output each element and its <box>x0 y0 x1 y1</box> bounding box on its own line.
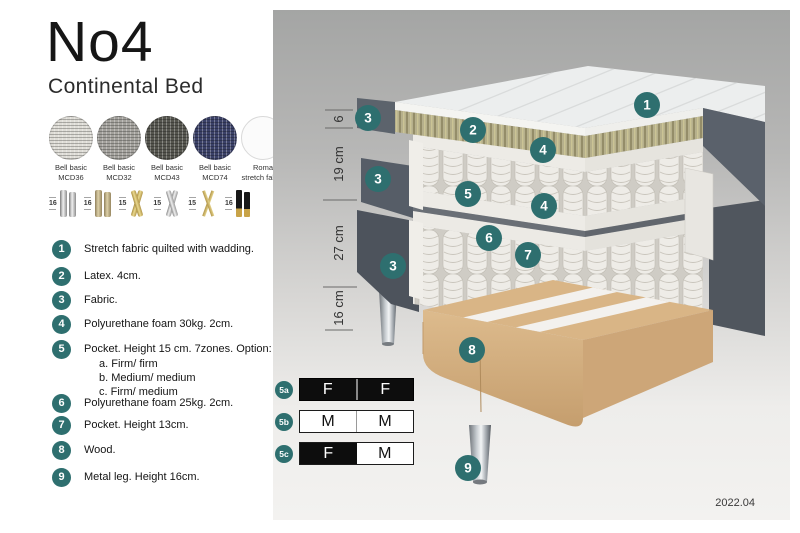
part-option: b. Medium/ medium <box>99 371 272 385</box>
part-item: 7Pocket. Height 13cm. <box>52 416 189 435</box>
firmness-cell: M <box>300 411 356 432</box>
parts-list: 1Stretch fabric quilted with wadding. 2L… <box>52 240 274 520</box>
firmness-id: 5a <box>275 381 293 399</box>
callout-4: 4 <box>530 137 556 163</box>
part-item: 6Polyurethane foam 25kg. 2cm. <box>52 394 233 413</box>
firmness-cell: M <box>357 443 414 464</box>
part-item: 9Metal leg. Height 16cm. <box>52 468 200 487</box>
part-text: Pocket. Height 15 cm. 7zones. Option: a.… <box>84 340 272 400</box>
fabric-swatch-circle <box>49 116 93 160</box>
fabric-swatch-row: Bell basicMCD36 Bell basicMCD32 Bell bas… <box>48 116 286 183</box>
fabric-swatch: Bell basicMCD43 <box>144 116 190 183</box>
callout-2: 2 <box>460 117 486 143</box>
svg-text:4: 4 <box>539 143 547 158</box>
fabric-swatch-circle <box>145 116 189 160</box>
leg-option: 15 <box>188 190 217 217</box>
callout-8: 8 <box>459 337 485 363</box>
part-option: a. Firm/ firm <box>99 357 272 371</box>
dimension-label: 27 cm <box>331 225 346 260</box>
callout-9: 9 <box>455 455 481 481</box>
version-label: 2022.04 <box>715 497 755 509</box>
part-item: 8Wood. <box>52 441 116 460</box>
callout-4: 4 <box>531 193 557 219</box>
part-item: 4Polyurethane foam 30kg. 2cm. <box>52 315 233 334</box>
title-block: No4 Continental Bed <box>46 14 203 99</box>
part-item: 2Latex. 4cm. <box>52 267 141 286</box>
svg-text:3: 3 <box>364 111 372 126</box>
callout-3: 3 <box>355 105 381 131</box>
leg-height-label: 15 <box>153 195 161 212</box>
leg-height-label: 16 <box>49 195 57 212</box>
fabric-swatch: Bell basicMCD74 <box>192 116 238 183</box>
part-text: Polyurethane foam 25kg. 2cm. <box>84 394 233 411</box>
part-number: 3 <box>52 291 71 310</box>
svg-text:2: 2 <box>469 123 477 138</box>
dimension-label: 16 cm <box>331 290 346 325</box>
fabric-swatch-label: Bell basicMCD32 <box>103 163 135 183</box>
part-number: 2 <box>52 267 71 286</box>
fabric-swatch-circle <box>97 116 141 160</box>
svg-text:1: 1 <box>643 98 651 113</box>
part-number: 6 <box>52 394 71 413</box>
cylinder-silver-leg-icon <box>60 190 76 217</box>
part-text: Stretch fabric quilted with wadding. <box>84 240 254 257</box>
part-number: 4 <box>52 315 71 334</box>
part-text: Pocket. Height 13cm. <box>84 416 189 433</box>
firmness-row-5a: 5a F F <box>275 378 414 401</box>
firmness-cell: M <box>356 411 413 432</box>
fabric-swatch: Bell basicMCD32 <box>96 116 142 183</box>
fabric-swatch-label: Bell basicMCD74 <box>199 163 231 183</box>
middle-box-frame-end <box>685 168 713 260</box>
black-gold-leg-icon <box>236 190 250 217</box>
fabric-swatch-circle <box>193 116 237 160</box>
hairpin-gold-leg-icon <box>199 190 217 217</box>
firmness-cell: F <box>300 443 357 464</box>
twisted-gold-leg-icon <box>129 190 145 217</box>
part-text: Metal leg. Height 16cm. <box>84 468 200 485</box>
firmness-cell: F <box>358 379 414 400</box>
part-item: 5 Pocket. Height 15 cm. 7zones. Option: … <box>52 340 272 400</box>
svg-text:4: 4 <box>540 199 548 214</box>
firmness-bar: F M <box>299 442 414 465</box>
firmness-id: 5c <box>275 445 293 463</box>
page: { "title": "No4", "subtitle": "Continent… <box>0 0 800 533</box>
part-number: 1 <box>52 240 71 259</box>
bottom-box-right-fabric <box>709 200 765 336</box>
part-number: 5 <box>52 340 71 359</box>
twisted-silver-leg-icon <box>164 190 180 217</box>
firmness-cell: F <box>300 379 356 400</box>
firmness-bar: M M <box>299 410 414 433</box>
firmness-id: 5b <box>275 413 293 431</box>
leg-height-label: 16 <box>225 195 233 212</box>
part-text: Latex. 4cm. <box>84 267 141 284</box>
callout-5: 5 <box>455 181 481 207</box>
leg-option: 15 <box>153 190 180 217</box>
leg-height-label: 15 <box>188 195 196 212</box>
part-number: 9 <box>52 468 71 487</box>
callout-6: 6 <box>476 225 502 251</box>
part-number: 8 <box>52 441 71 460</box>
firmness-bar: F F <box>299 378 414 401</box>
dimension-label: 6 <box>331 115 346 122</box>
svg-text:7: 7 <box>524 248 532 263</box>
callout-7: 7 <box>515 242 541 268</box>
leg-option: 16 <box>49 190 76 217</box>
svg-text:6: 6 <box>485 231 493 246</box>
page-title: No4 <box>46 14 203 71</box>
fabric-swatch-label: Bell basicMCD43 <box>151 163 183 183</box>
leg-option: 16 <box>225 190 250 217</box>
part-item: 3Fabric. <box>52 291 118 310</box>
part-text: Fabric. <box>84 291 118 308</box>
leg-options-row: 16 16 15 15 15 16 <box>49 186 250 220</box>
leg-option: 16 <box>84 190 111 217</box>
svg-text:3: 3 <box>389 259 397 274</box>
dimension-label: 19 cm <box>331 146 346 181</box>
part-text: Wood. <box>84 441 116 458</box>
part-number: 7 <box>52 416 71 435</box>
svg-text:8: 8 <box>468 343 476 358</box>
svg-text:5: 5 <box>464 187 472 202</box>
firmness-row-5b: 5b M M <box>275 410 414 433</box>
part-text: Polyurethane foam 30kg. 2cm. <box>84 315 233 332</box>
leg-height-label: 15 <box>119 195 127 212</box>
callout-3: 3 <box>380 253 406 279</box>
firmness-row-5c: 5c F M <box>275 442 414 465</box>
leg-option: 15 <box>119 190 146 217</box>
callout-1: 1 <box>634 92 660 118</box>
part-item: 1Stretch fabric quilted with wadding. <box>52 240 254 259</box>
fabric-swatch: Bell basicMCD36 <box>48 116 94 183</box>
cylinder-brass-leg-icon <box>95 190 111 217</box>
leg-height-label: 16 <box>84 195 92 212</box>
callout-3: 3 <box>365 166 391 192</box>
fabric-swatch-label: Bell basicMCD36 <box>55 163 87 183</box>
svg-text:9: 9 <box>464 461 472 476</box>
page-subtitle: Continental Bed <box>48 75 203 99</box>
svg-text:3: 3 <box>374 172 382 187</box>
diagram-panel: 6 19 cm 27 cm 16 cm <box>273 10 790 520</box>
